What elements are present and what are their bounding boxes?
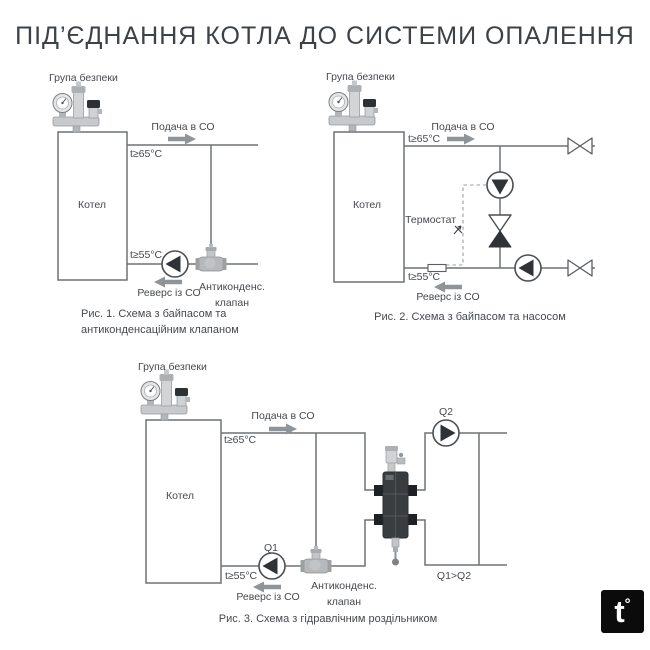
hydraulic-separator [374,446,417,566]
figure-1-caption-line2: антиконденсаційним клапаном [81,324,239,336]
air-vent-stem [388,462,395,473]
supply-temp-label: t≥65°C [408,133,441,145]
air-vent-side-valve [397,458,405,464]
return-temp-label: t≥55°C [130,249,163,261]
boiler-label: Котел [166,490,194,502]
supply-arrow-icon [447,134,475,145]
diagram-3-hydraulic-separator: Котел Група безпеки Подача в СО t≥65°C Q… [130,355,520,633]
circulation-pump-icon [162,251,188,277]
diagram-1-bypass-valve: Котел Група безпеки Подача в СО t≥65°C t… [40,68,320,340]
supply-shutoff-valve-icon [568,138,592,154]
return-flow-label: Реверс із СО [416,291,479,303]
safety-group-icon [329,81,378,132]
return-shutoff-valve-icon [568,260,592,276]
return-temp-label: t≥55°C [408,271,441,283]
thermostat-sensor-icon [454,226,462,234]
circulation-pump-icon [515,255,541,281]
thermostat-label: Термостат [405,214,456,226]
return-flow-label: Реверс із СО [236,591,299,603]
figure-2-caption: Рис. 2. Схема з байпасом та насосом [374,311,566,323]
return-arrow-icon [154,277,182,288]
return-flow-label: Реверс із СО [137,287,200,299]
pump-q2-label: Q2 [439,406,453,418]
safety-group-label: Група безпеки [138,361,207,373]
secondary-supply-line [417,433,507,490]
pump-q1-label: Q1 [264,542,278,554]
boiler-label: Котел [353,199,381,211]
infographic-page: ПІД’ЄДНАННЯ КОТЛА ДО СИСТЕМИ ОПАЛЕННЯ Ко… [0,0,650,650]
separator-port-bottom-left [374,514,383,525]
air-vent-icon [386,450,397,463]
flow-note-label: Q1>Q2 [437,570,471,582]
supply-arrow-icon [168,134,196,145]
check-valve-lower-icon [489,231,511,247]
separator-port-bottom-right [408,514,417,525]
air-vent-knob [399,453,403,457]
return-line [221,520,374,566]
safety-group-label: Група безпеки [49,72,118,84]
valve-label-line2: клапан [327,596,361,608]
separator-label-chip [386,475,394,480]
figure-3-caption: Рис. 3. Схема з гідравлічним роздільнико… [219,613,438,625]
figure-1-caption-line1: Рис. 1. Схема з байпасом та [81,308,227,320]
valve-label-line1: Антиконденс. [199,281,265,293]
anticondensation-valve-icon [301,546,332,573]
supply-temp-label: t≥65°C [130,148,163,160]
safety-group-icon [53,82,102,133]
separator-port-top-left [374,485,383,496]
drain-valve-icon [392,538,399,547]
separator-port-top-right [408,485,417,496]
primary-pump-icon [259,553,285,579]
supply-flow-label: Подача в СО [151,121,214,133]
logo-degree-mark: ° [625,597,631,612]
return-temp-label: t≥55°C [225,570,258,582]
air-vent-cap [385,446,398,451]
supply-flow-label: Подача в СО [431,121,494,133]
drain-valve-nut [393,547,398,552]
safety-group-label: Група безпеки [326,71,395,83]
bypass-pump-icon [487,172,513,198]
secondary-return-line [417,520,507,565]
page-title: ПІД’ЄДНАННЯ КОТЛА ДО СИСТЕМИ ОПАЛЕННЯ [0,22,650,51]
secondary-pump-icon [433,420,459,446]
valve-label-line1: Антиконденс. [311,580,377,592]
supply-flow-label: Подача в СО [251,410,314,422]
drain-valve-ball [392,559,399,566]
boiler-label: Котел [78,199,106,211]
anticondensation-valve-icon [196,244,227,271]
supply-temp-label: t≥65°C [224,434,257,446]
safety-group-icon [141,370,190,421]
check-valve-upper-icon [489,215,511,231]
diagram-2-bypass-pump: Котел Група безпеки Подача в СО t≥65°C Т… [318,68,618,330]
brand-logo: t° [601,590,644,633]
logo-letter: t [614,596,624,627]
drain-valve-stem [395,552,397,559]
